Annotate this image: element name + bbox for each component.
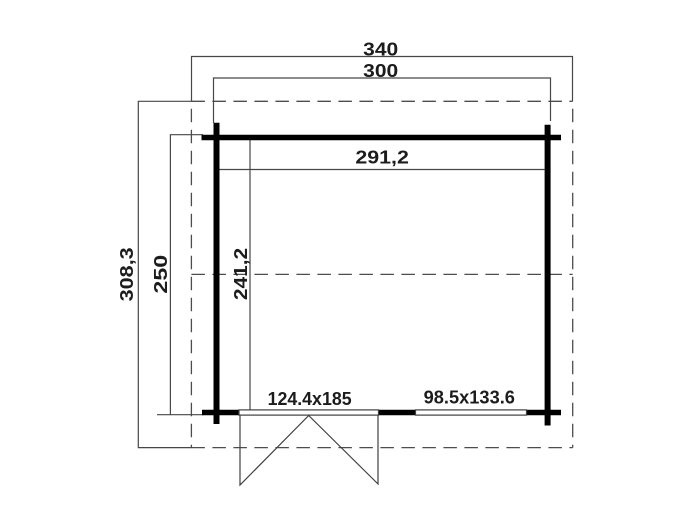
svg-text:340: 340 [363,38,398,59]
svg-text:300: 300 [363,60,398,81]
svg-text:98.5x133.6: 98.5x133.6 [424,387,515,408]
svg-text:241,2: 241,2 [230,248,251,300]
svg-text:124.4x185: 124.4x185 [268,388,352,409]
svg-text:308,3: 308,3 [116,247,137,301]
svg-text:291,2: 291,2 [355,147,409,168]
svg-text:250: 250 [150,255,171,294]
